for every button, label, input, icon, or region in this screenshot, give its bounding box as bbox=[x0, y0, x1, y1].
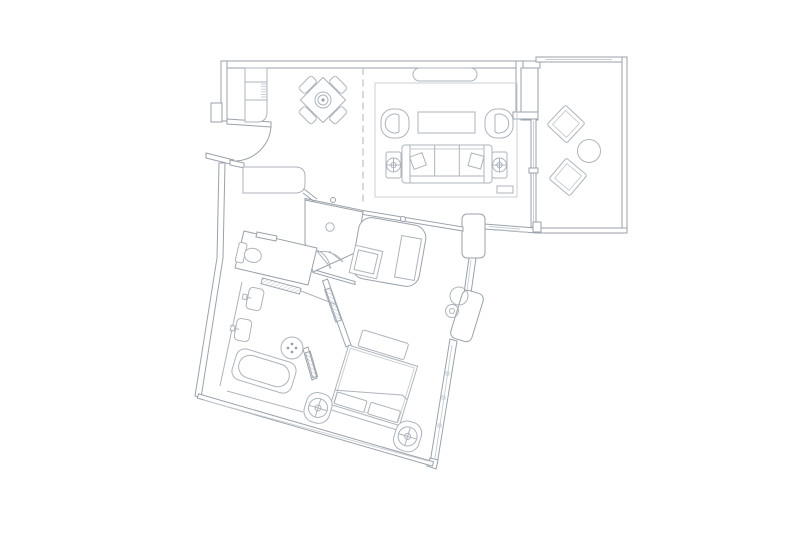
nightstand-left bbox=[301, 390, 335, 426]
ottoman bbox=[349, 245, 383, 279]
tv-credenza bbox=[413, 68, 477, 81]
rotated-pier bbox=[449, 289, 485, 343]
lounge-chair-1 bbox=[547, 105, 585, 143]
floor-plan-page bbox=[0, 0, 800, 533]
bath-stool bbox=[281, 337, 303, 359]
dining-area bbox=[286, 63, 360, 137]
entry-step-wall-b bbox=[230, 160, 244, 168]
structure-right-side bbox=[427, 214, 485, 469]
sink-1 bbox=[240, 286, 264, 312]
floor-vent bbox=[497, 186, 513, 193]
entry-wardrobe-cabinet bbox=[245, 68, 267, 122]
left-wall-lower bbox=[195, 163, 225, 398]
entry-door-swing-arc bbox=[236, 126, 271, 161]
living-room bbox=[375, 68, 517, 197]
sink-2 bbox=[229, 317, 253, 342]
entry-foyer bbox=[245, 68, 267, 122]
connector-wall-1 bbox=[304, 189, 317, 199]
balcony-right-wall bbox=[622, 57, 627, 233]
built-in-wardrobe bbox=[243, 167, 305, 193]
bedroom-window-glazing bbox=[435, 345, 452, 458]
bathroom bbox=[220, 282, 303, 412]
barrel-armchair-right bbox=[485, 109, 513, 138]
lamp-circle-inner bbox=[450, 309, 455, 314]
glazing-mullion bbox=[529, 168, 538, 173]
glazing-below-column bbox=[464, 258, 476, 293]
door-pivot-1 bbox=[331, 198, 336, 203]
top-wall bbox=[221, 61, 540, 68]
round-side-table bbox=[578, 140, 601, 163]
closet-corridor-wall bbox=[313, 270, 355, 285]
throw-pillow-right bbox=[468, 153, 484, 169]
table-lamp-right bbox=[493, 158, 507, 172]
door-pivot-2 bbox=[401, 217, 406, 222]
balcony-terrace bbox=[547, 105, 601, 196]
wall-niche bbox=[211, 103, 222, 122]
table-lamp-left bbox=[387, 158, 401, 172]
lounge-chair-2 bbox=[549, 158, 587, 196]
balcony-bottom-wall bbox=[536, 228, 627, 233]
balcony-corner-post bbox=[533, 222, 541, 232]
barrel-armchair-left bbox=[381, 109, 409, 138]
floor-plan-drawing bbox=[0, 0, 800, 533]
coffee-table bbox=[418, 112, 475, 133]
column-pier bbox=[462, 214, 485, 258]
